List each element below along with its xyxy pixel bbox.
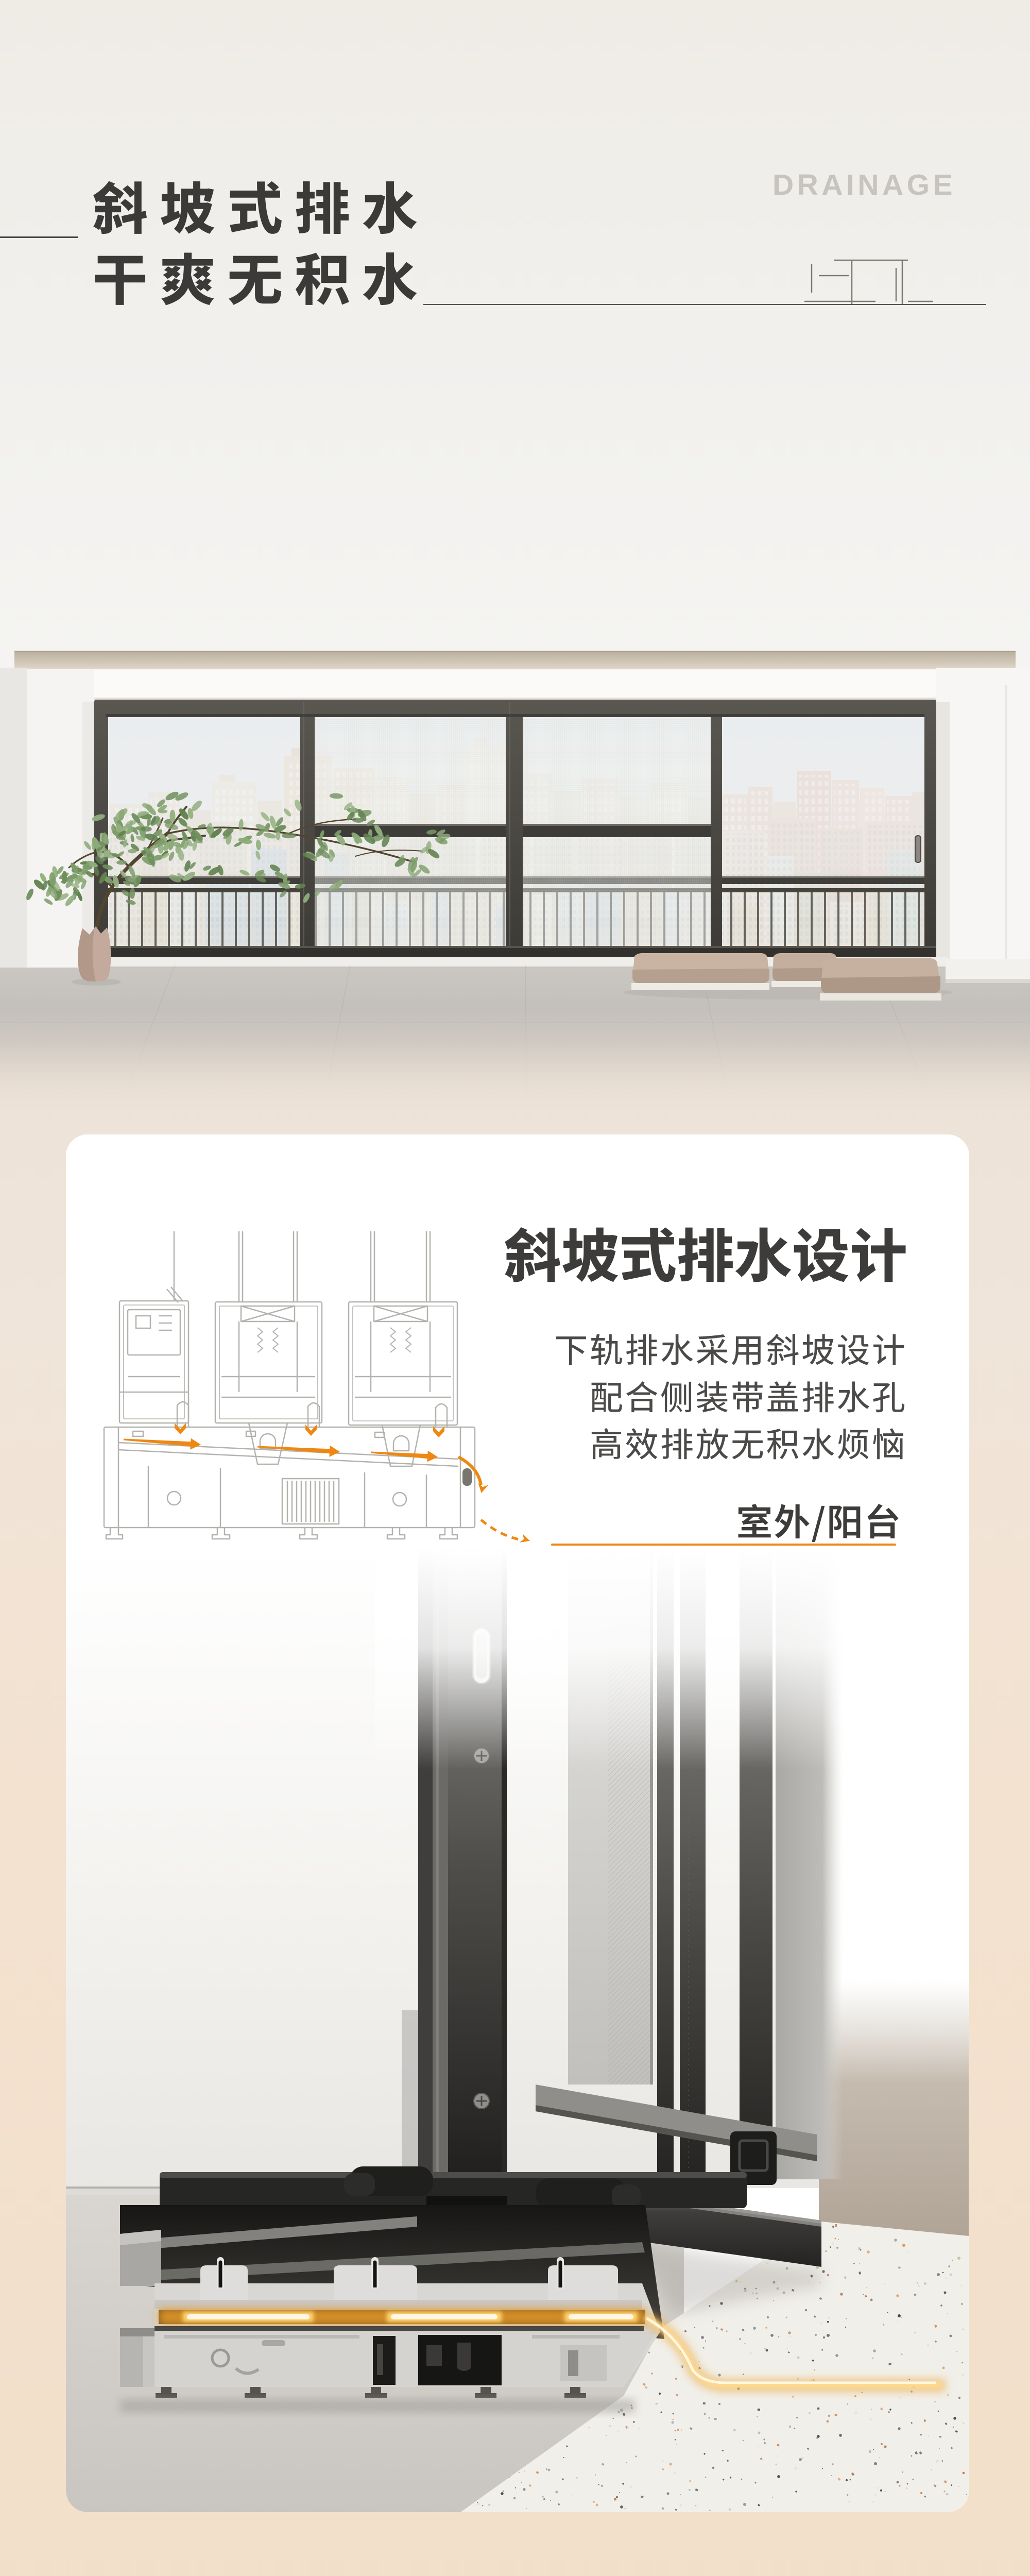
svg-text:DRAINAGE: DRAINAGE [772,168,956,201]
